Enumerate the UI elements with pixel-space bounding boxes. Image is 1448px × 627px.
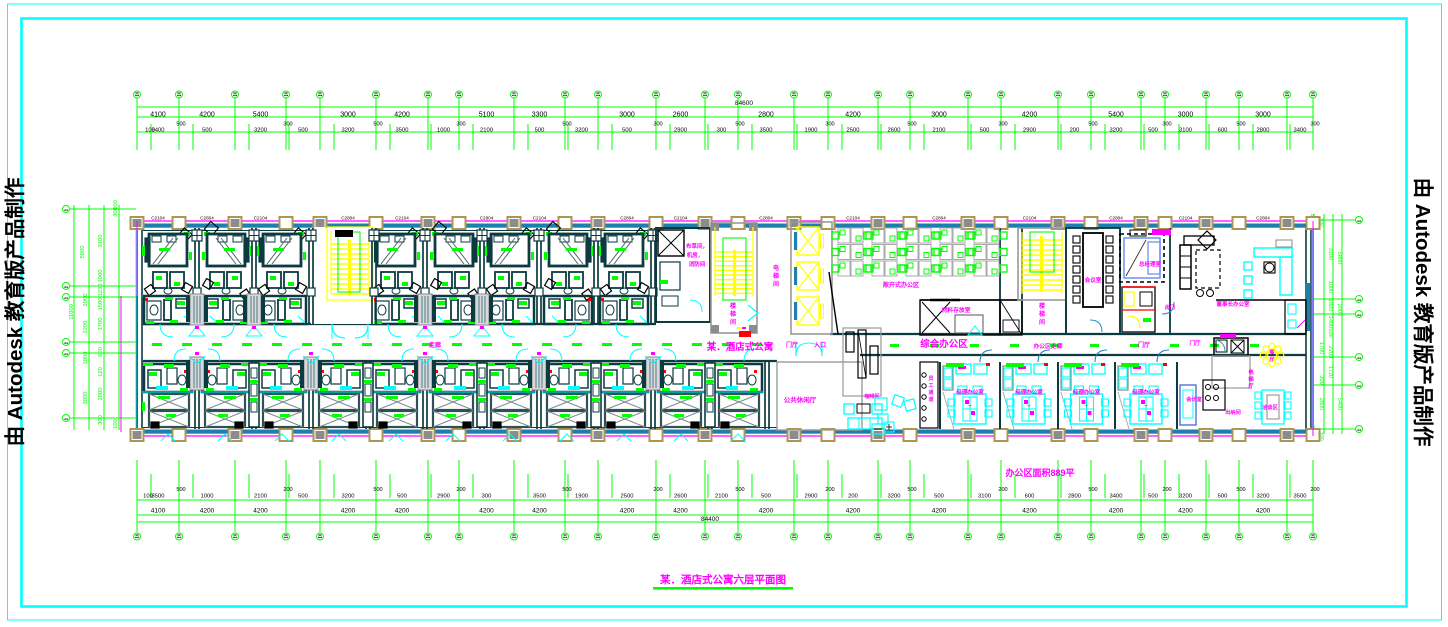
svg-text:84600: 84600 [735,100,753,107]
svg-text:2800: 2800 [1257,128,1270,134]
svg-text:1720: 1720 [1327,366,1333,378]
svg-text:3100: 3100 [978,494,991,500]
svg-text:1000: 1000 [437,128,450,134]
svg-text:4200: 4200 [1022,508,1037,515]
svg-text:总经理室: 总经理室 [1139,260,1162,268]
svg-text:1400: 1400 [1327,316,1333,328]
svg-text:300: 300 [456,122,465,128]
svg-text:C2104: C2104 [1179,216,1193,221]
svg-text:4200: 4200 [845,112,861,119]
svg-text:3500: 3500 [760,128,773,134]
svg-text:3500: 3500 [152,494,165,500]
svg-text:2800: 2800 [758,112,774,119]
svg-text:4200: 4200 [341,508,356,515]
svg-text:●●: ●● [64,341,68,345]
svg-text:3500: 3500 [533,494,546,500]
svg-text:电: 电 [773,264,779,272]
svg-text:2900: 2900 [1023,128,1036,134]
svg-text:●●: ●● [64,208,68,212]
svg-text:2500: 2500 [847,128,860,134]
svg-text:300: 300 [482,494,492,500]
svg-text:500: 500 [1088,122,1097,128]
svg-text:200: 200 [1070,128,1080,134]
svg-text:楼: 楼 [1039,302,1045,310]
svg-text:C2804: C2804 [932,216,946,221]
svg-text:5800: 5800 [80,246,86,259]
svg-text:●●: ●● [1357,428,1361,432]
svg-text:300: 300 [825,122,834,128]
svg-text:5400: 5400 [1108,112,1124,119]
svg-text:2000: 2000 [1336,304,1342,316]
svg-text:办公区走廊: 办公区走廊 [1034,342,1063,350]
svg-text:500: 500 [1148,494,1158,500]
svg-text:C2804: C2804 [1109,216,1123,221]
svg-text:500: 500 [761,494,771,500]
svg-text:3200: 3200 [342,494,355,500]
svg-text:500: 500 [1088,487,1097,493]
svg-text:+: + [1084,403,1088,410]
svg-text:4200: 4200 [759,508,774,515]
svg-text:4200: 4200 [1178,508,1193,515]
svg-text:员: 员 [928,375,933,382]
svg-text:梯: 梯 [773,272,779,280]
svg-text:2800: 2800 [1068,494,1081,500]
svg-text:200: 200 [653,487,662,493]
svg-text:通: 通 [928,389,933,396]
svg-text:300: 300 [1310,122,1319,128]
svg-text:1900: 1900 [805,128,818,134]
svg-text:500: 500 [934,494,944,500]
svg-text:厅: 厅 [1269,356,1274,363]
svg-text:500: 500 [735,122,744,128]
svg-text:门厅: 门厅 [786,341,798,349]
svg-text:500: 500 [1148,128,1158,134]
svg-text:C2804: C2804 [200,216,214,221]
svg-text:梯: 梯 [730,310,736,318]
svg-text:500: 500 [1236,122,1245,128]
svg-text:2600: 2600 [888,128,901,134]
svg-text:4200: 4200 [200,508,215,515]
svg-text:经理办公室: 经理办公室 [1015,388,1043,396]
svg-text:500: 500 [907,487,916,493]
svg-text:敞开式办公区: 敞开式办公区 [883,281,919,289]
svg-text:3200: 3200 [254,128,267,134]
svg-text:500: 500 [1236,487,1245,493]
svg-text:200: 200 [825,487,834,493]
svg-text:3400: 3400 [1294,128,1307,134]
svg-text:公共休闲厅: 公共休闲厅 [784,395,817,404]
svg-text:500: 500 [1218,494,1228,500]
svg-text:3100: 3100 [1179,128,1192,134]
svg-text:3000: 3000 [931,112,947,119]
svg-text:咖啡区: 咖啡区 [864,393,879,400]
svg-text:1500: 1500 [98,298,104,311]
svg-text:C2104: C2104 [254,216,268,221]
svg-text:11000: 11000 [69,304,75,320]
svg-text:4100: 4100 [151,508,166,515]
svg-text:由 Autodesk 教育版产品制作: 由 Autodesk 教育版产品制作 [3,177,27,446]
svg-text:4200: 4200 [394,112,410,119]
svg-text:600: 600 [1218,128,1228,134]
svg-text:1230: 1230 [98,284,104,297]
svg-text:4200: 4200 [932,508,947,515]
svg-text:消防间: 消防间 [689,260,706,268]
svg-text:梯: 梯 [1248,375,1254,383]
svg-text:3800: 3800 [83,392,89,405]
svg-text:2900: 2900 [437,494,450,500]
svg-text:1000: 1000 [1327,281,1333,293]
svg-text:500: 500 [298,128,308,134]
svg-text:500: 500 [562,122,571,128]
svg-text:2200: 2200 [1327,346,1333,358]
svg-text:300: 300 [1318,375,1324,384]
svg-text:3000: 3000 [619,112,635,119]
svg-text:C2104: C2104 [1023,216,1037,221]
svg-text:+: + [1144,403,1148,410]
svg-text:C2104: C2104 [151,216,165,221]
svg-text:2000: 2000 [83,294,89,307]
svg-text:2100: 2100 [480,128,493,134]
svg-text:3200: 3200 [1257,494,1270,500]
svg-text:300: 300 [717,128,727,134]
svg-text:2600: 2600 [674,494,687,500]
svg-text:C2804: C2804 [1256,216,1270,221]
svg-text:200: 200 [283,487,292,493]
svg-text:200: 200 [1162,487,1171,493]
svg-text:200: 200 [1310,487,1319,493]
svg-text:●●: ●● [1357,298,1361,302]
svg-text:5100: 5100 [479,112,495,119]
svg-text:4200: 4200 [1109,508,1124,515]
svg-text:门厅: 门厅 [1189,339,1201,347]
svg-text:1820: 1820 [1327,299,1333,311]
svg-text:楼: 楼 [730,302,736,310]
svg-text:3400: 3400 [1110,494,1123,500]
svg-text:300: 300 [998,122,1007,128]
svg-text:布草间，: 布草间， [686,242,708,250]
svg-text:200: 200 [848,494,858,500]
svg-text:厅: 厅 [1248,382,1254,390]
svg-text:办公区面积889平: 办公区面积889平 [1005,467,1074,478]
svg-text:3100: 3100 [1327,248,1333,260]
svg-text:材料存放室: 材料存放室 [941,306,971,314]
svg-text:3200: 3200 [1110,128,1123,134]
svg-text:●●: ●● [64,352,68,356]
svg-text:500: 500 [373,122,382,128]
svg-text:1000: 1000 [98,270,104,283]
svg-text:4100: 4100 [150,112,166,119]
svg-text:C2804: C2804 [759,216,773,221]
svg-text:●●: ●● [1357,313,1361,317]
svg-text:300: 300 [98,415,104,425]
svg-text:600: 600 [98,347,104,357]
svg-text:4200: 4200 [620,508,635,515]
svg-text:●●: ●● [64,296,68,300]
svg-text:●●: ●● [64,417,68,421]
svg-text:2100: 2100 [254,494,267,500]
svg-text:C2104: C2104 [533,216,547,221]
svg-text:500: 500 [980,128,990,134]
svg-text:4200: 4200 [532,508,547,515]
svg-text:房门: 房门 [1165,304,1175,311]
svg-text:500: 500 [1327,328,1333,337]
svg-text:200: 200 [998,487,1007,493]
svg-text:500: 500 [176,487,185,493]
svg-text:3000: 3000 [1178,112,1194,119]
svg-text:董事长办公室: 董事长办公室 [1216,300,1250,308]
svg-text:C2104: C2104 [846,216,860,221]
svg-text:经理办公室: 经理办公室 [1132,388,1160,396]
svg-text:2600: 2600 [673,112,689,119]
svg-text:C2104: C2104 [395,216,409,221]
svg-text:600: 600 [1025,494,1035,500]
svg-text:5400: 5400 [253,112,269,119]
svg-text:3200: 3200 [888,494,901,500]
svg-text:1700: 1700 [98,318,104,331]
svg-text:电: 电 [1248,368,1254,376]
svg-text:餐: 餐 [1268,349,1275,356]
svg-text:100: 100 [113,200,119,210]
svg-text:1700: 1700 [1318,342,1324,354]
svg-text:1800: 1800 [83,352,89,365]
svg-text:3500: 3500 [1294,494,1307,500]
svg-text:300: 300 [283,122,292,128]
svg-text:●●: ●● [1357,384,1361,388]
svg-text:4200: 4200 [673,508,688,515]
svg-text:4200: 4200 [199,112,215,119]
svg-text:100: 100 [113,419,119,429]
svg-text:某．酒店式公寓: 某．酒店式公寓 [706,341,774,353]
svg-text:会议室: 会议室 [1085,276,1102,284]
svg-text:●●: ●● [1357,219,1361,223]
svg-text:500: 500 [535,128,545,134]
svg-text:机房，: 机房， [686,251,704,259]
svg-text:道: 道 [928,396,933,403]
svg-text:5800: 5800 [1336,252,1342,264]
svg-text:500: 500 [907,122,916,128]
svg-text:3000: 3000 [1255,112,1271,119]
svg-text:4200: 4200 [395,508,410,515]
svg-text:2900: 2900 [674,128,687,134]
svg-text:1900: 1900 [575,494,588,500]
svg-text:洽谈区: 洽谈区 [1262,403,1278,411]
svg-text:2200: 2200 [83,321,89,334]
svg-text:3200: 3200 [575,128,588,134]
svg-text:3200: 3200 [342,128,355,134]
svg-text:500: 500 [373,487,382,493]
svg-text:C2804: C2804 [480,216,494,221]
svg-text:2100: 2100 [933,128,946,134]
svg-text:出纳间: 出纳间 [1225,408,1241,416]
svg-text:间: 间 [1039,318,1045,326]
svg-text:500: 500 [622,128,632,134]
svg-text:●●: ●● [1357,356,1361,360]
svg-text:C2104: C2104 [674,216,688,221]
svg-text:500: 500 [202,128,212,134]
svg-text:经理办公室: 经理办公室 [956,388,984,396]
svg-text:门厅: 门厅 [1138,341,1150,349]
svg-text:由 Autodesk 教育版产品制作: 由 Autodesk 教育版产品制作 [1411,178,1435,447]
svg-text:120: 120 [98,367,104,377]
svg-text:3300: 3300 [532,112,548,119]
svg-text:100: 100 [145,128,155,134]
svg-text:+: + [968,403,972,410]
svg-text:2800: 2800 [1318,398,1324,410]
svg-text:2100: 2100 [715,494,728,500]
svg-text:2900: 2900 [805,494,818,500]
svg-text:4200: 4200 [1256,508,1271,515]
svg-text:某．酒店式公寓六层平面图: 某．酒店式公寓六层平面图 [659,573,786,586]
svg-text:300: 300 [653,122,662,128]
svg-text:C2804: C2804 [341,216,355,221]
svg-text:1000: 1000 [201,494,214,500]
svg-text:综合办公区: 综合办公区 [920,338,968,350]
svg-text:5400: 5400 [1336,398,1342,410]
svg-text:间: 间 [730,318,736,326]
svg-text:4200: 4200 [479,508,494,515]
svg-text:4200: 4200 [1022,112,1038,119]
svg-text:100: 100 [143,494,153,500]
svg-text:走廊: 走廊 [429,341,441,349]
svg-text:3500: 3500 [396,128,409,134]
svg-text:2500: 2500 [621,494,634,500]
svg-text:500: 500 [562,487,571,493]
svg-text:200: 200 [456,487,465,493]
svg-text:工: 工 [928,383,933,389]
svg-text:+: + [1027,403,1031,410]
svg-text:500: 500 [397,494,407,500]
svg-text:300: 300 [1162,122,1171,128]
svg-text:4200: 4200 [846,508,861,515]
svg-text:2800: 2800 [98,388,104,401]
svg-text:84400: 84400 [701,516,719,523]
svg-text:C2804: C2804 [620,216,634,221]
svg-text:500: 500 [176,122,185,128]
svg-text:间: 间 [773,280,779,288]
svg-text:500: 500 [298,494,308,500]
svg-text:会计室: 会计室 [1186,395,1202,403]
svg-text:梯: 梯 [1039,310,1045,318]
svg-text:入口: 入口 [813,342,826,349]
svg-text:3200: 3200 [1179,494,1192,500]
svg-text:500: 500 [735,487,744,493]
svg-text:经理办公室: 经理办公室 [1073,388,1101,396]
svg-text:4200: 4200 [253,508,268,515]
svg-text:3100: 3100 [98,235,104,248]
svg-text:3000: 3000 [340,112,356,119]
svg-text:●●: ●● [64,285,68,289]
